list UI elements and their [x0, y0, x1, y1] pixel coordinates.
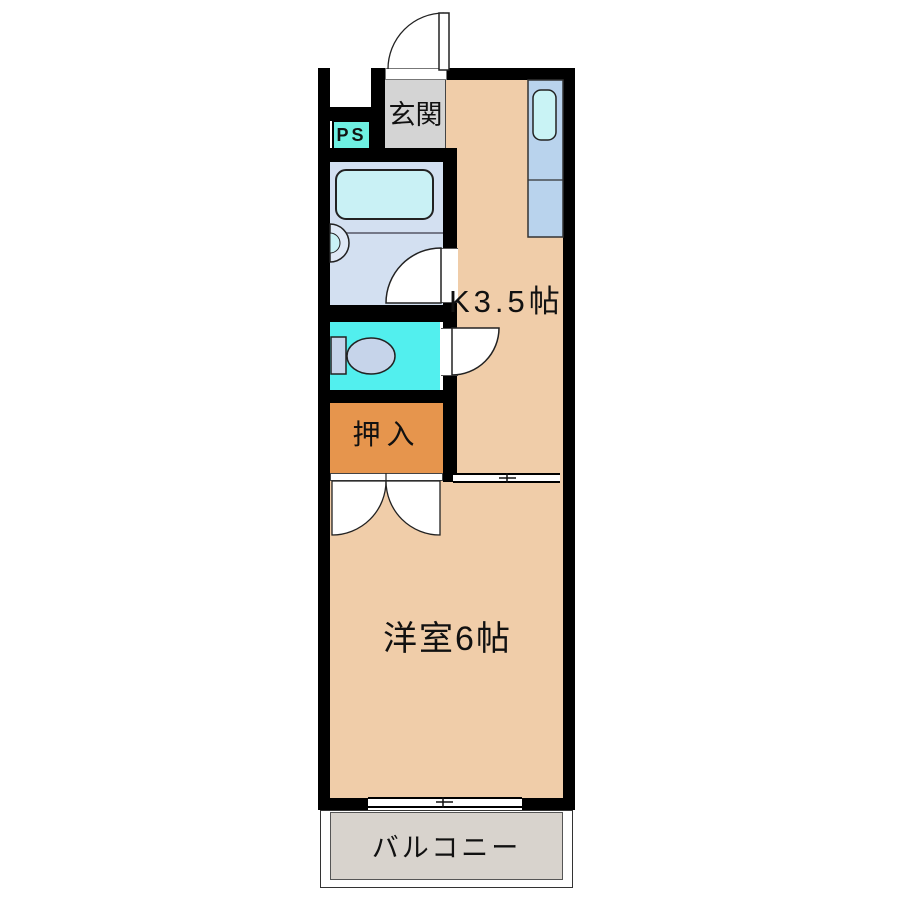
balcony-window-tick — [436, 797, 453, 808]
fixtures-layer — [0, 0, 900, 900]
closet-label: 押入 — [330, 420, 443, 451]
toilet-bowl — [347, 338, 395, 374]
kitchen-label: K3.5帖 — [449, 285, 564, 319]
kitchen-sink — [533, 90, 556, 140]
entrance-door-leaf — [439, 13, 449, 70]
western-room-label: 洋室6帖 — [330, 621, 565, 658]
sliding-partition-tick — [499, 473, 516, 483]
closet-door-left-swing — [332, 481, 386, 535]
floor-plan: PS 玄関 K3.5帖 押入 洋室6帖 バルコニー — [0, 0, 900, 900]
entrance-label: 玄関 — [385, 101, 446, 131]
bathtub — [336, 170, 433, 219]
closet-door-right-swing — [386, 481, 440, 535]
bathroom-door-swing — [386, 248, 441, 303]
entrance-door-arc — [388, 13, 444, 69]
toilet-tank — [331, 337, 346, 374]
toilet-door-swing — [452, 328, 499, 375]
balcony-label: バルコニー — [330, 834, 563, 864]
